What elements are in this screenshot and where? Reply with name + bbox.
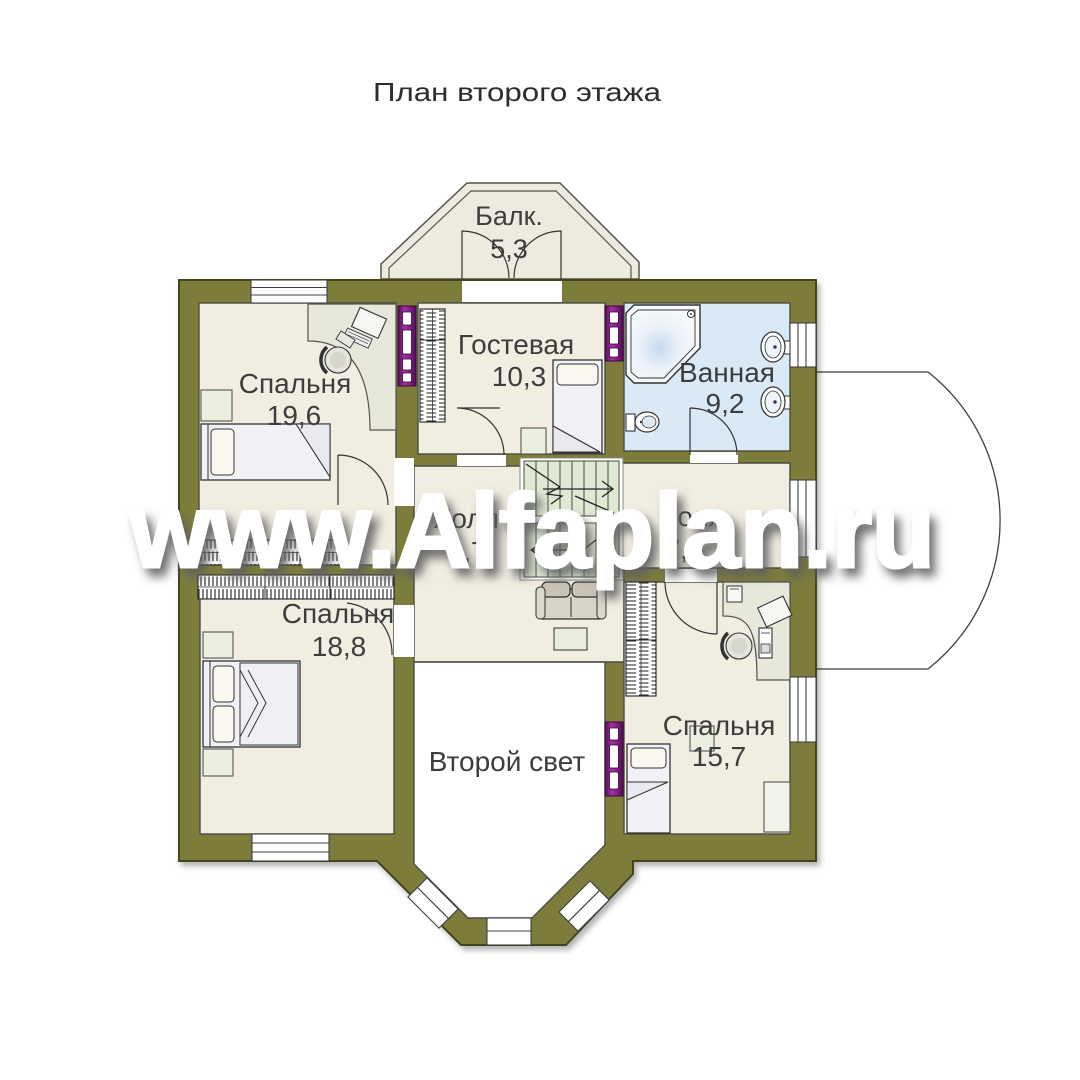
svg-text:Спальня: Спальня: [663, 710, 776, 741]
svg-text:Гостевая: Гостевая: [458, 329, 574, 360]
svg-text:План второго этажа: План второго этажа: [373, 77, 662, 107]
svg-text:18,8: 18,8: [312, 631, 367, 662]
svg-text:Ванная: Ванная: [679, 357, 775, 388]
svg-text:5,3: 5,3: [490, 234, 528, 264]
svg-text:Спальня: Спальня: [282, 598, 395, 629]
svg-text:19,6: 19,6: [267, 400, 322, 431]
svg-text:Балк.: Балк.: [475, 201, 543, 231]
svg-text:Спальня: Спальня: [239, 368, 352, 399]
svg-text:9,2: 9,2: [706, 388, 745, 419]
svg-text:10,3: 10,3: [492, 361, 547, 392]
svg-text:15,7: 15,7: [692, 741, 747, 772]
svg-text:Второй свет: Второй свет: [429, 746, 586, 777]
svg-text:www.Alfaplan.ru: www.Alfaplan.ru: [129, 473, 935, 590]
